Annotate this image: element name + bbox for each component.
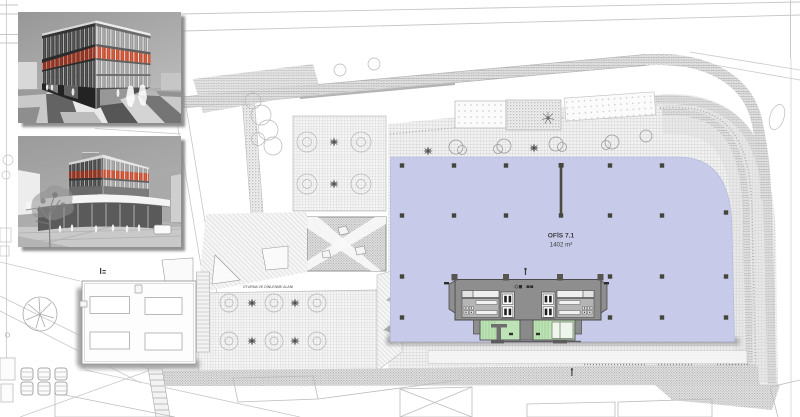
svg-text:OTURMA VE DİNLENME ALANI: OTURMA VE DİNLENME ALANI <box>243 284 294 289</box>
svg-text:1402 m²: 1402 m² <box>550 242 573 249</box>
svg-text:OFİS 7.1: OFİS 7.1 <box>548 232 575 240</box>
